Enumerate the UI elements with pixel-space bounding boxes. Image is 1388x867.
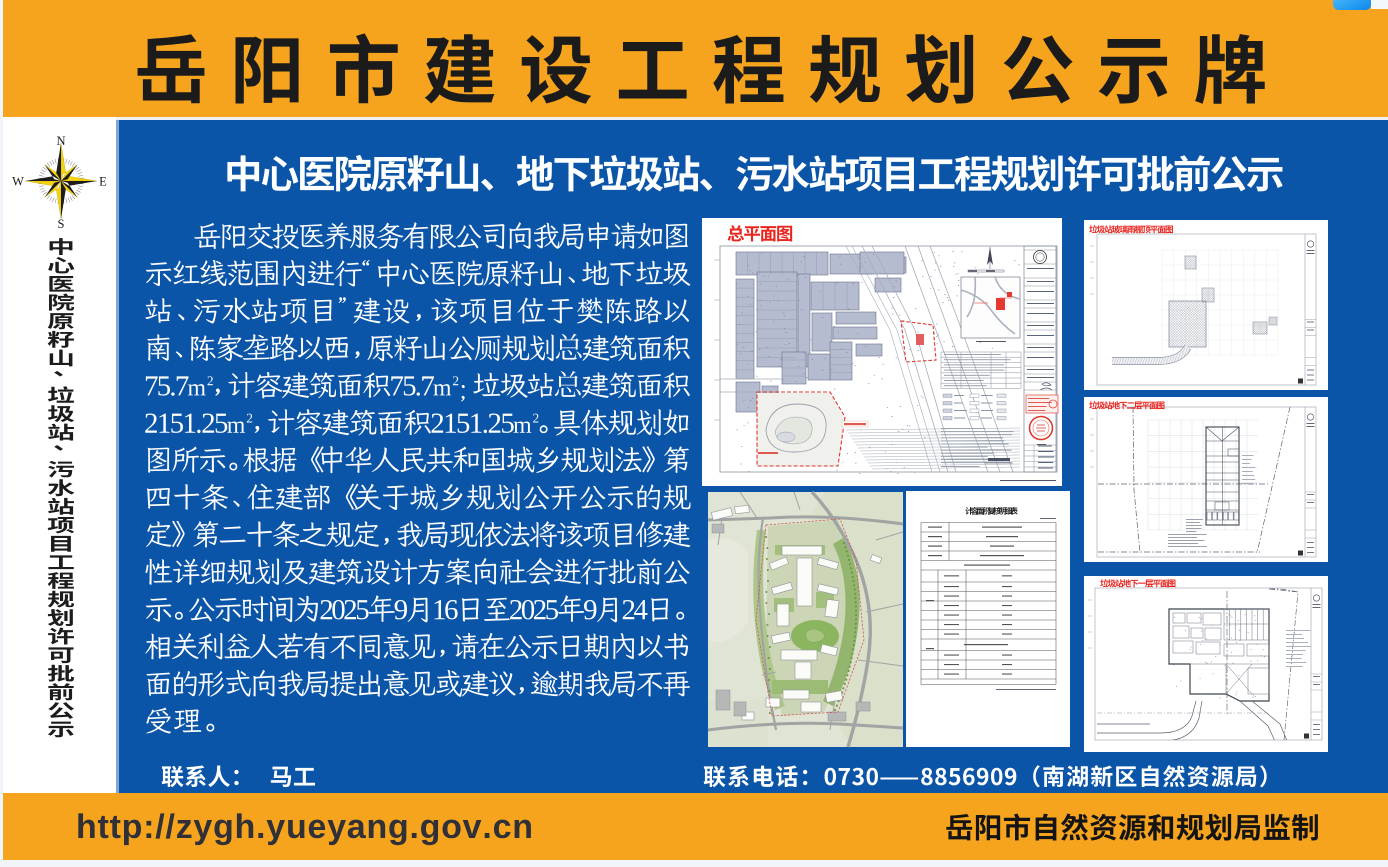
- svg-text:W: W: [12, 175, 24, 189]
- svg-text:N: N: [56, 134, 65, 148]
- svg-text:E: E: [99, 175, 107, 189]
- svg-text:S: S: [58, 217, 65, 231]
